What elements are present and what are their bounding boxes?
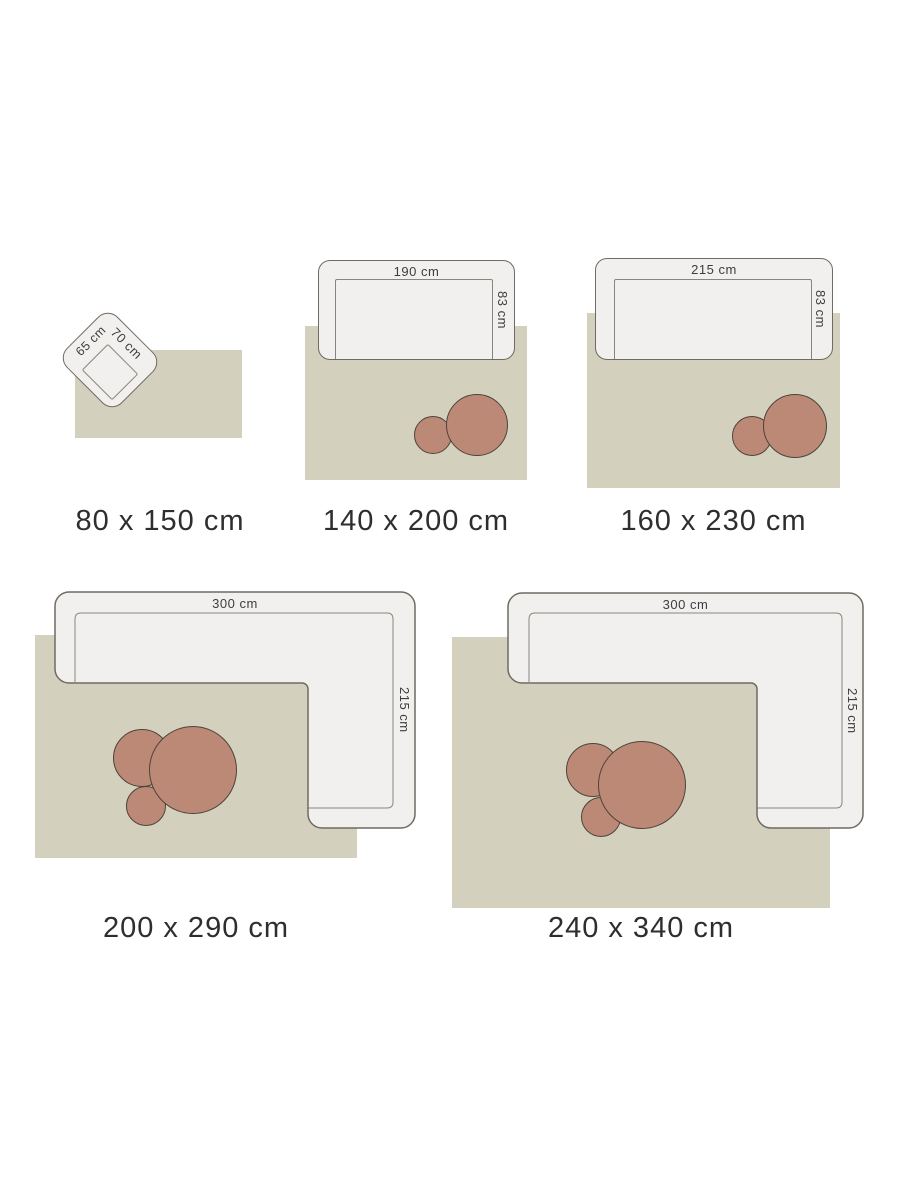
corner-sofa-depth-label: 215 cm (845, 688, 860, 734)
sofa-top-view-icon: 215 cm 83 cm (595, 258, 833, 360)
rug-size-caption: 80 x 150 cm (35, 504, 285, 538)
sofa-depth-label: 83 cm (813, 290, 828, 328)
sofa-width-label: 190 cm (319, 264, 514, 279)
rug-size-caption: 240 x 340 cm (452, 911, 830, 945)
side-table-large-icon (763, 394, 827, 458)
corner-sofa-shape (54, 591, 416, 829)
rug-size-caption: 200 x 290 cm (35, 911, 357, 945)
sofa-depth-label: 83 cm (495, 291, 510, 329)
corner-sofa-outline (55, 592, 415, 828)
corner-sofa-outline (508, 593, 863, 828)
corner-sofa-top-view-icon: 300 cm 215 cm (54, 591, 416, 829)
corner-sofa-width-label: 300 cm (54, 596, 416, 611)
sofa-width-label: 215 cm (596, 262, 832, 277)
corner-sofa-depth-label: 215 cm (397, 687, 412, 733)
corner-sofa-top-view-icon: 300 cm 215 cm (507, 592, 864, 829)
rug-size-caption: 140 x 200 cm (305, 504, 527, 538)
corner-sofa-width-label: 300 cm (507, 597, 864, 612)
sofa-seat (335, 279, 493, 359)
sofa-seat (614, 279, 812, 359)
side-table-large-icon (446, 394, 508, 456)
rug-size-caption: 160 x 230 cm (587, 504, 840, 538)
sofa-top-view-icon: 190 cm 83 cm (318, 260, 515, 360)
corner-sofa-shape (507, 592, 864, 829)
rug-size-guide: 65 cm 70 cm 80 x 150 cm 190 cm 83 cm 140… (0, 0, 900, 1200)
